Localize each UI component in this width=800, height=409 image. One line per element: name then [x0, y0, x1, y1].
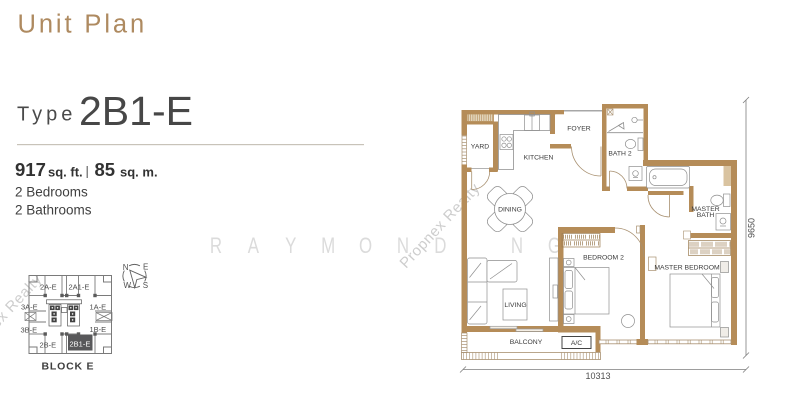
svg-text:S: S: [143, 281, 148, 290]
svg-text:2B1-E: 2B1-E: [70, 340, 91, 349]
svg-text:Type: Type: [17, 104, 76, 126]
svg-text:FOYER: FOYER: [567, 126, 591, 133]
svg-text:O: O: [359, 234, 372, 259]
svg-text:E: E: [143, 262, 148, 271]
svg-text:9650: 9650: [747, 218, 757, 238]
svg-text:N: N: [123, 263, 129, 272]
svg-text:917: 917: [15, 159, 46, 180]
svg-text:YARD: YARD: [471, 144, 489, 151]
svg-text:BATH 2: BATH 2: [608, 151, 632, 158]
svg-text:sq. m.: sq. m.: [120, 165, 158, 180]
svg-text:A/C: A/C: [571, 340, 582, 347]
svg-text:2A1-E: 2A1-E: [69, 283, 90, 292]
svg-text:Y: Y: [285, 234, 296, 259]
svg-text:3B-E: 3B-E: [21, 326, 38, 335]
svg-text:BEDROOM 2: BEDROOM 2: [583, 255, 624, 262]
svg-text:N: N: [511, 234, 523, 259]
svg-text:|: |: [86, 164, 89, 179]
svg-text:3A-E: 3A-E: [21, 303, 38, 312]
svg-text:2 Bedrooms: 2 Bedrooms: [15, 185, 88, 200]
svg-text:2 Bathrooms: 2 Bathrooms: [15, 203, 92, 218]
svg-text:M: M: [321, 234, 335, 259]
svg-text:LIVING: LIVING: [504, 302, 526, 309]
svg-text:2B-E: 2B-E: [40, 341, 57, 350]
svg-text:MASTER BEDROOM: MASTER BEDROOM: [654, 265, 720, 272]
svg-text:85: 85: [95, 159, 116, 180]
svg-text:A: A: [248, 234, 260, 259]
svg-text:BLOCK E: BLOCK E: [42, 361, 95, 373]
svg-text:BALCONY: BALCONY: [510, 339, 543, 346]
svg-text:sq. ft.: sq. ft.: [48, 165, 83, 180]
svg-text:DINING: DINING: [498, 207, 522, 214]
svg-text:2B1-E: 2B1-E: [79, 88, 193, 134]
svg-text:2A-E: 2A-E: [40, 283, 57, 292]
svg-text:W: W: [124, 281, 132, 290]
svg-text:1A-E: 1A-E: [90, 303, 107, 312]
svg-text:KITCHEN: KITCHEN: [524, 155, 554, 162]
svg-text:R: R: [210, 234, 222, 259]
svg-text:BATH: BATH: [697, 212, 715, 219]
svg-text:Unit Plan: Unit Plan: [18, 11, 148, 39]
svg-text:1B-E: 1B-E: [90, 325, 107, 334]
svg-text:10313: 10313: [585, 371, 610, 381]
